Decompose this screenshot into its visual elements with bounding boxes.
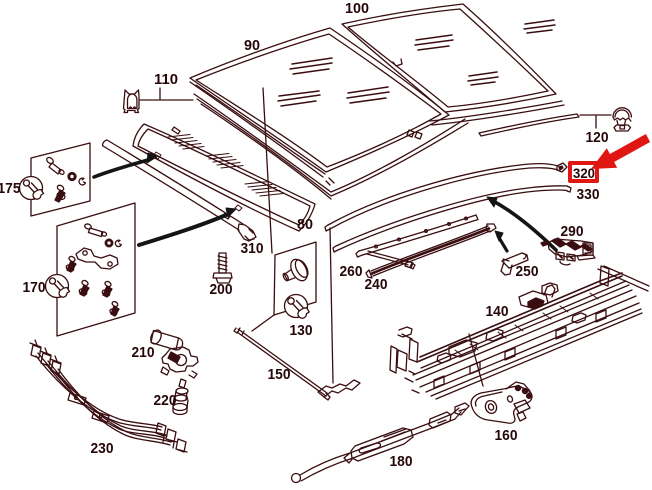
svg-text:320: 320 bbox=[573, 165, 595, 181]
svg-text:230: 230 bbox=[91, 440, 114, 457]
svg-text:170: 170 bbox=[23, 279, 46, 296]
svg-text:180: 180 bbox=[390, 453, 413, 470]
svg-text:130: 130 bbox=[290, 322, 313, 339]
svg-text:80: 80 bbox=[297, 216, 313, 233]
svg-text:100: 100 bbox=[345, 0, 369, 17]
svg-text:290: 290 bbox=[561, 223, 584, 240]
svg-text:150: 150 bbox=[268, 366, 291, 383]
svg-text:90: 90 bbox=[244, 37, 260, 54]
svg-text:260: 260 bbox=[340, 263, 363, 280]
svg-text:160: 160 bbox=[495, 427, 518, 444]
svg-text:120: 120 bbox=[586, 129, 609, 146]
svg-text:200: 200 bbox=[210, 281, 233, 298]
svg-text:140: 140 bbox=[486, 303, 509, 320]
svg-text:240: 240 bbox=[365, 276, 388, 293]
svg-text:210: 210 bbox=[132, 344, 155, 361]
svg-text:110: 110 bbox=[154, 71, 178, 88]
svg-text:250: 250 bbox=[516, 263, 539, 280]
svg-text:310: 310 bbox=[241, 240, 264, 257]
svg-text:220: 220 bbox=[154, 392, 177, 409]
svg-text:175: 175 bbox=[0, 180, 21, 197]
svg-text:330: 330 bbox=[577, 186, 600, 203]
